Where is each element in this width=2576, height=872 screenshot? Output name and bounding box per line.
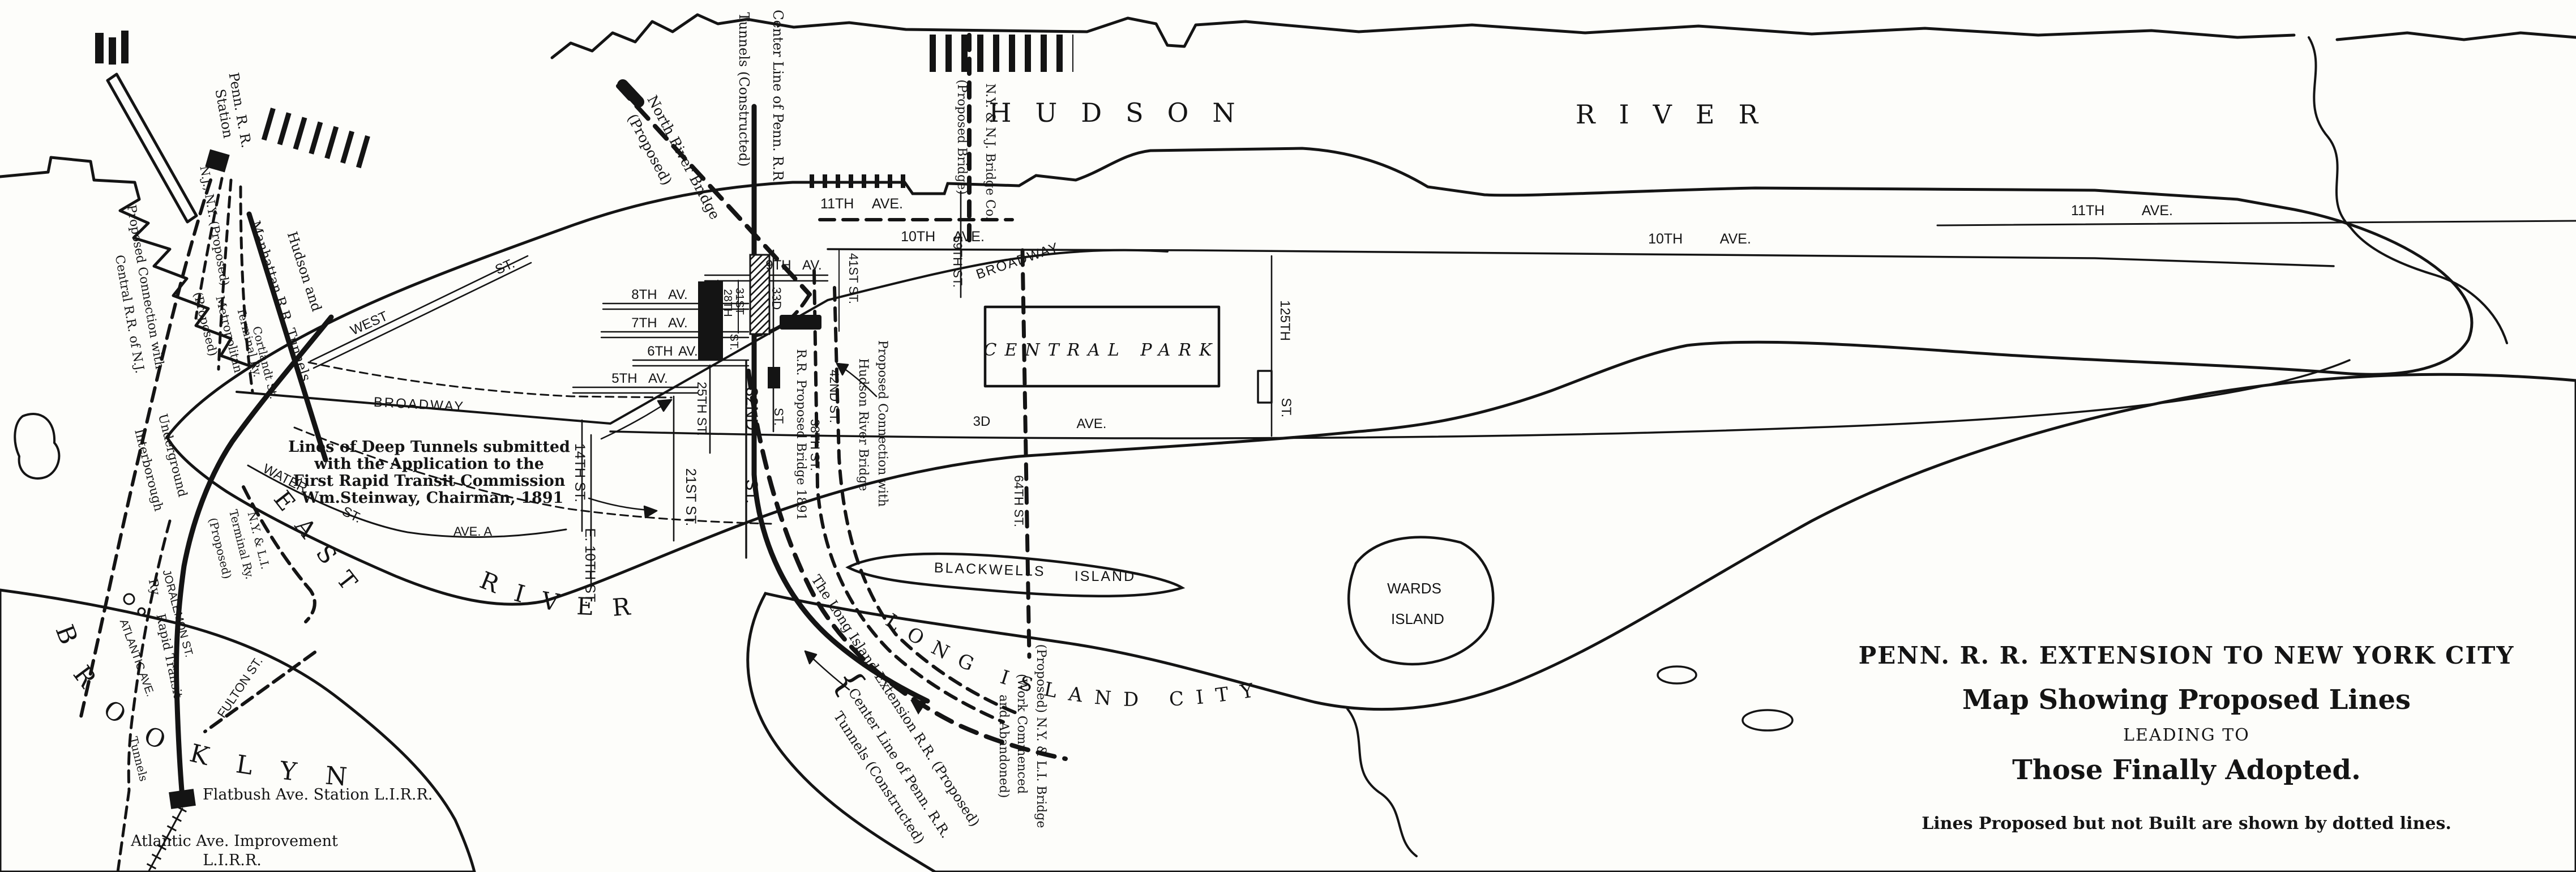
rapid-transit-ry-label: Ry. bbox=[146, 578, 163, 599]
title-line-3: LEADING TO bbox=[2123, 725, 2250, 745]
jersey-city-pier bbox=[108, 74, 196, 222]
map-canvas: HUDSON RIVER EAST RIVER CENTRAL PARK BRO… bbox=[0, 0, 2576, 872]
eleventh-ave-left-label: 11TH AVE. bbox=[820, 196, 903, 212]
125th-st-label-st: ST. bbox=[1278, 398, 1294, 418]
steinway-note-3: First Rapid Transit Commission bbox=[293, 472, 566, 490]
ny-li-bridge-label-2: (Work Commenced bbox=[1015, 674, 1029, 794]
jc-yard-block-2 bbox=[109, 37, 116, 65]
penn-yard-east-block bbox=[780, 315, 821, 330]
interborough-label: Interborough bbox=[131, 428, 165, 512]
third-ave-label-3d: 3D bbox=[973, 414, 991, 429]
wards-island-outline bbox=[1349, 537, 1493, 664]
atlantic-improvement-label-1: Atlantic Ave. Improvement bbox=[130, 832, 338, 850]
hudson-river-label-1: HUDSON bbox=[989, 97, 1259, 128]
bay-islet-1 bbox=[124, 594, 134, 604]
eleventh-ave-right-label: 11TH AVE. bbox=[2071, 203, 2173, 219]
atlantic-improvement-label-2: L.I.R.R. bbox=[203, 852, 262, 869]
seventh-ave-label: 7TH AV. bbox=[631, 315, 687, 331]
eighth-ave-label: 8TH AV. bbox=[631, 287, 687, 302]
28th-31st-st-st: ST. bbox=[728, 334, 740, 350]
32nd-st-label-num: 32ND bbox=[742, 387, 761, 431]
bay-islet-2 bbox=[138, 608, 145, 615]
title-line-2: Map Showing Proposed Lines bbox=[1962, 684, 2411, 716]
hudson-river-label-2: RIVER bbox=[1576, 99, 1782, 130]
31st-st-label: 31ST bbox=[733, 288, 746, 315]
ninth-ave-label: 9TH AV. bbox=[765, 258, 821, 273]
center-line-penn-label-1: Center Line of Penn. R.R. bbox=[770, 10, 786, 185]
avenue-a-label: AVE. A bbox=[453, 524, 492, 538]
ny-nj-bridge-label-1: N.Y. & N.J. Bridge Co. bbox=[983, 83, 997, 220]
center-line-penn-label-2: Tunnels (Constructed) bbox=[736, 12, 752, 167]
steinway-note-1: Lines of Deep Tunnels submitted bbox=[288, 438, 570, 456]
penn-station-block bbox=[698, 281, 723, 360]
ny-li-terminal-label-3: (Proposed) bbox=[206, 516, 234, 580]
33d-st-label-st: ST. bbox=[772, 408, 786, 426]
blackwells-label-2: ISLAND bbox=[1075, 568, 1136, 584]
25th-st-label: 25TH ST. bbox=[695, 382, 709, 436]
32nd-st-label-st: ST. bbox=[742, 479, 761, 503]
bay-island bbox=[15, 414, 59, 478]
33d-st-label-num: 33D bbox=[769, 287, 784, 310]
64th-st-label: 64TH ST. bbox=[1012, 475, 1026, 527]
59th-st-label: 59TH ST. bbox=[951, 236, 965, 288]
queens-pond-1 bbox=[1658, 666, 1696, 683]
41st-st-label: 41ST ST. bbox=[846, 253, 861, 304]
proposed-connection-hrb-label-1: Proposed Connection with bbox=[875, 340, 889, 507]
125th-st-label-num: 125TH bbox=[1277, 300, 1293, 341]
21st-st-label: 21ST ST. bbox=[683, 468, 699, 526]
tenth-ave-right-label: 10TH AVE. bbox=[1648, 231, 1751, 247]
ny-nj-bridge-label-2: (Proposed Bridge) bbox=[955, 79, 969, 194]
nj-ny-proposed-label: N.J., N.Y. (Proposed) bbox=[197, 165, 232, 287]
jc-piers bbox=[266, 123, 371, 154]
28th-st-label: 28TH bbox=[721, 289, 734, 317]
proposed-connection-hrb-label-2: Hudson River Bridge bbox=[856, 358, 870, 491]
hudson-far-shore bbox=[552, 15, 2576, 58]
38th-st-label: 38TH ST. bbox=[808, 419, 822, 471]
central-park-label: CENTRAL PARK bbox=[984, 340, 1220, 360]
queens-pond-2 bbox=[1743, 710, 1792, 730]
penn-yard-small-block bbox=[768, 367, 780, 388]
ny-li-bridge-label-1: (Proposed) N.Y. & L.I. Bridge bbox=[1034, 644, 1048, 828]
steinway-note-2: with the Application to the bbox=[314, 455, 544, 473]
e-10th-st-label: E. 10TH ST. bbox=[582, 528, 598, 605]
penn-rr-extension-map: HUDSON RIVER EAST RIVER CENTRAL PARK BRO… bbox=[0, 0, 2576, 872]
42nd-st-label: 42ND ST. bbox=[827, 370, 841, 423]
14th-st-label: 14TH ST. bbox=[572, 443, 588, 502]
north-river-bridge-anchor bbox=[623, 85, 639, 102]
third-ave-label-ave: AVE. bbox=[1077, 416, 1107, 431]
title-line-1: PENN. R. R. EXTENSION TO NEW YORK CITY bbox=[1859, 642, 2515, 669]
legend-note: Lines Proposed but not Built are shown b… bbox=[1922, 814, 2451, 833]
rr-proposed-bridge-1891-label: R.R. Proposed Bridge 1891 bbox=[794, 349, 808, 520]
tenth-ave-left-label: 10TH AVE. bbox=[901, 229, 985, 245]
ny-li-bridge-label-3: and Abandoned) bbox=[996, 695, 1011, 798]
sixth-ave-label: 6TH AV. bbox=[647, 344, 698, 359]
jc-yard-block-3 bbox=[121, 31, 129, 63]
flatbush-station-label: Flatbush Ave. Station L.I.R.R. bbox=[203, 786, 433, 803]
wards-label-2: ISLAND bbox=[1391, 610, 1444, 627]
fifth-ave-label: 5TH AV. bbox=[611, 371, 667, 386]
hudson-manhattan-label-1: Hudson and bbox=[284, 229, 325, 313]
wards-label-1: WARDS bbox=[1387, 580, 1441, 597]
jc-yard-block-1 bbox=[95, 33, 104, 63]
steinway-note-4: Wm.Steinway, Chairman, 1891 bbox=[301, 489, 564, 507]
title-line-4: Those Finally Adopted. bbox=[2012, 754, 2361, 786]
flatbush-station-block bbox=[169, 789, 196, 809]
